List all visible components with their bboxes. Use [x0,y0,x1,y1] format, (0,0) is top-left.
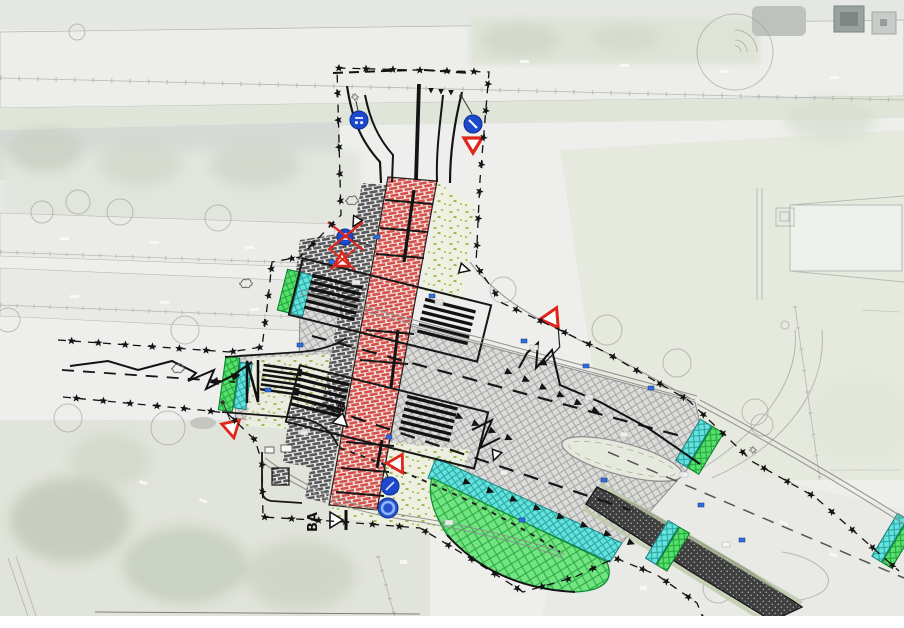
site-plan-drawing: BA B [0,0,904,628]
plan-canvas: BA B [0,0,904,628]
footpath-apron-lower [283,404,330,470]
mini-roundabout-sign [378,498,398,518]
page-margin [0,616,904,628]
